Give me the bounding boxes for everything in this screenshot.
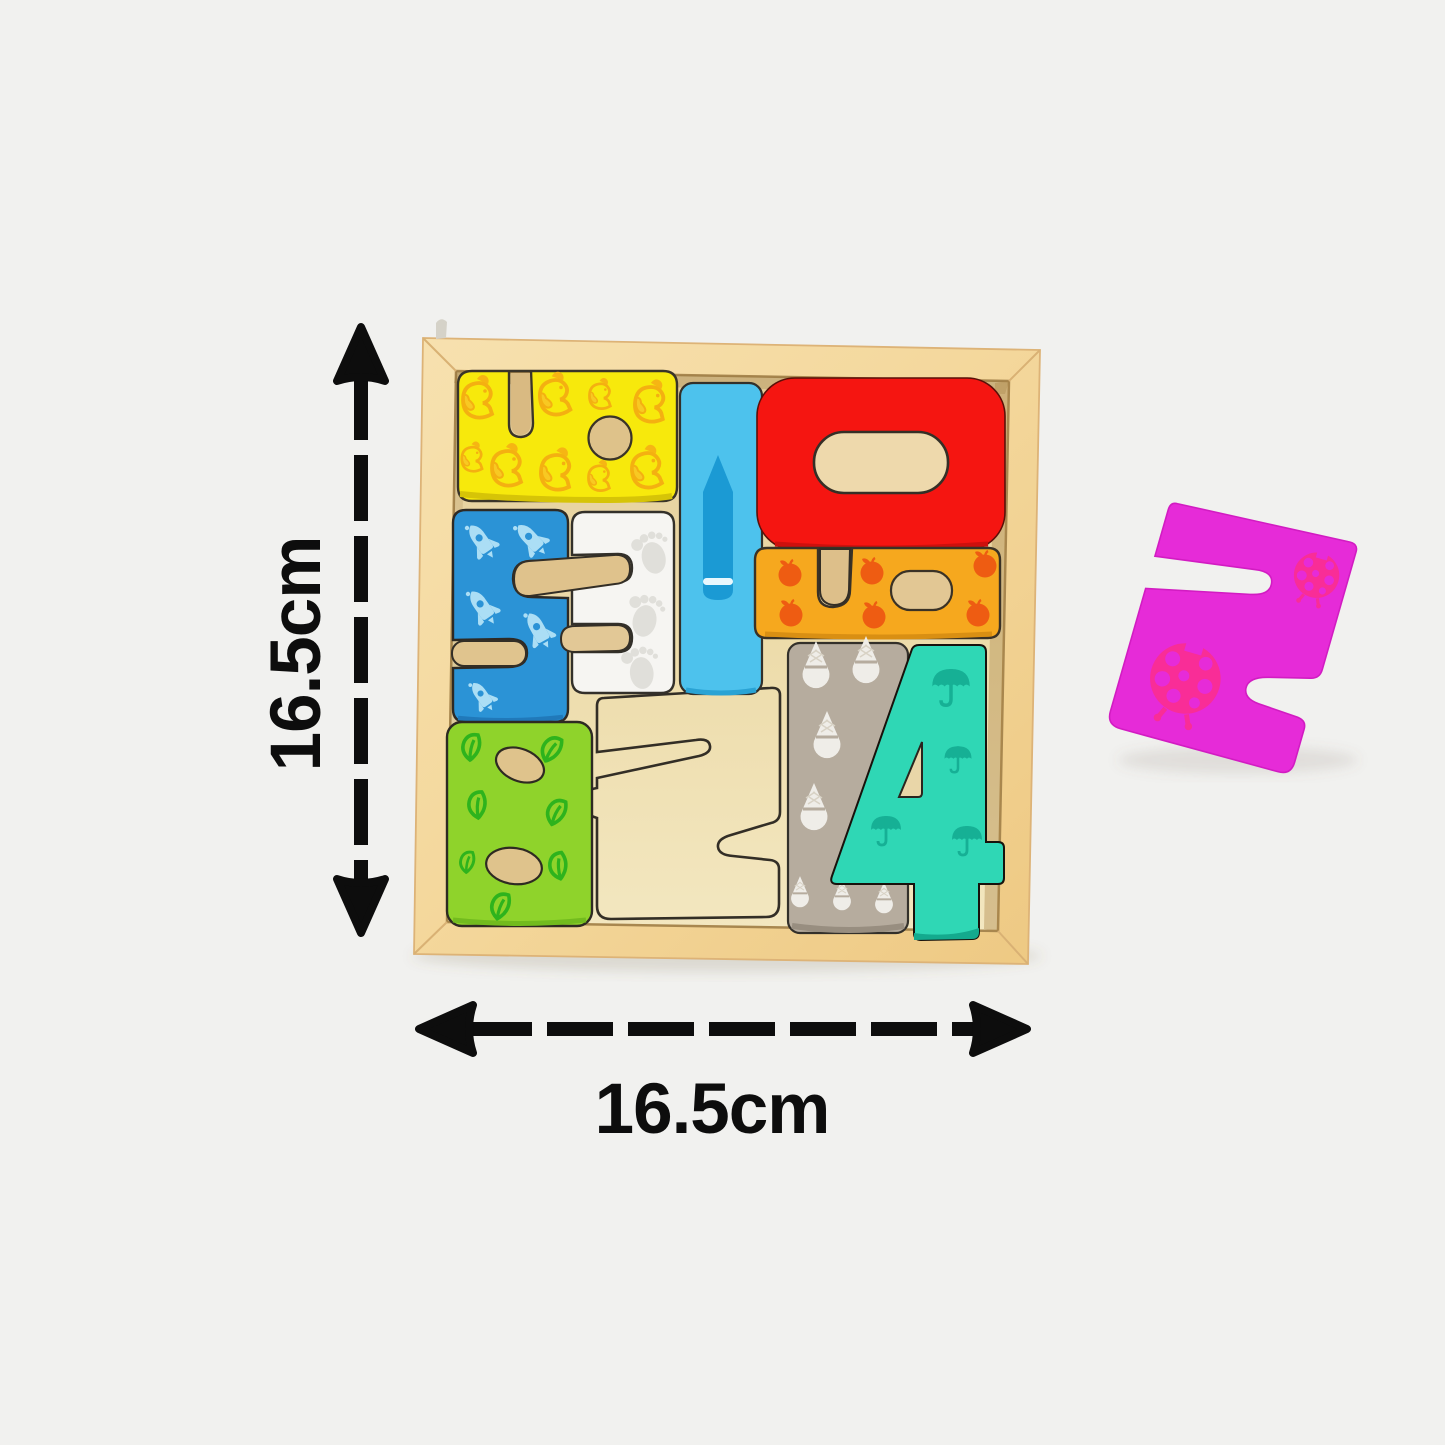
svg-text:16.5cm: 16.5cm xyxy=(257,537,336,772)
svg-text:16.5cm: 16.5cm xyxy=(595,1070,830,1149)
